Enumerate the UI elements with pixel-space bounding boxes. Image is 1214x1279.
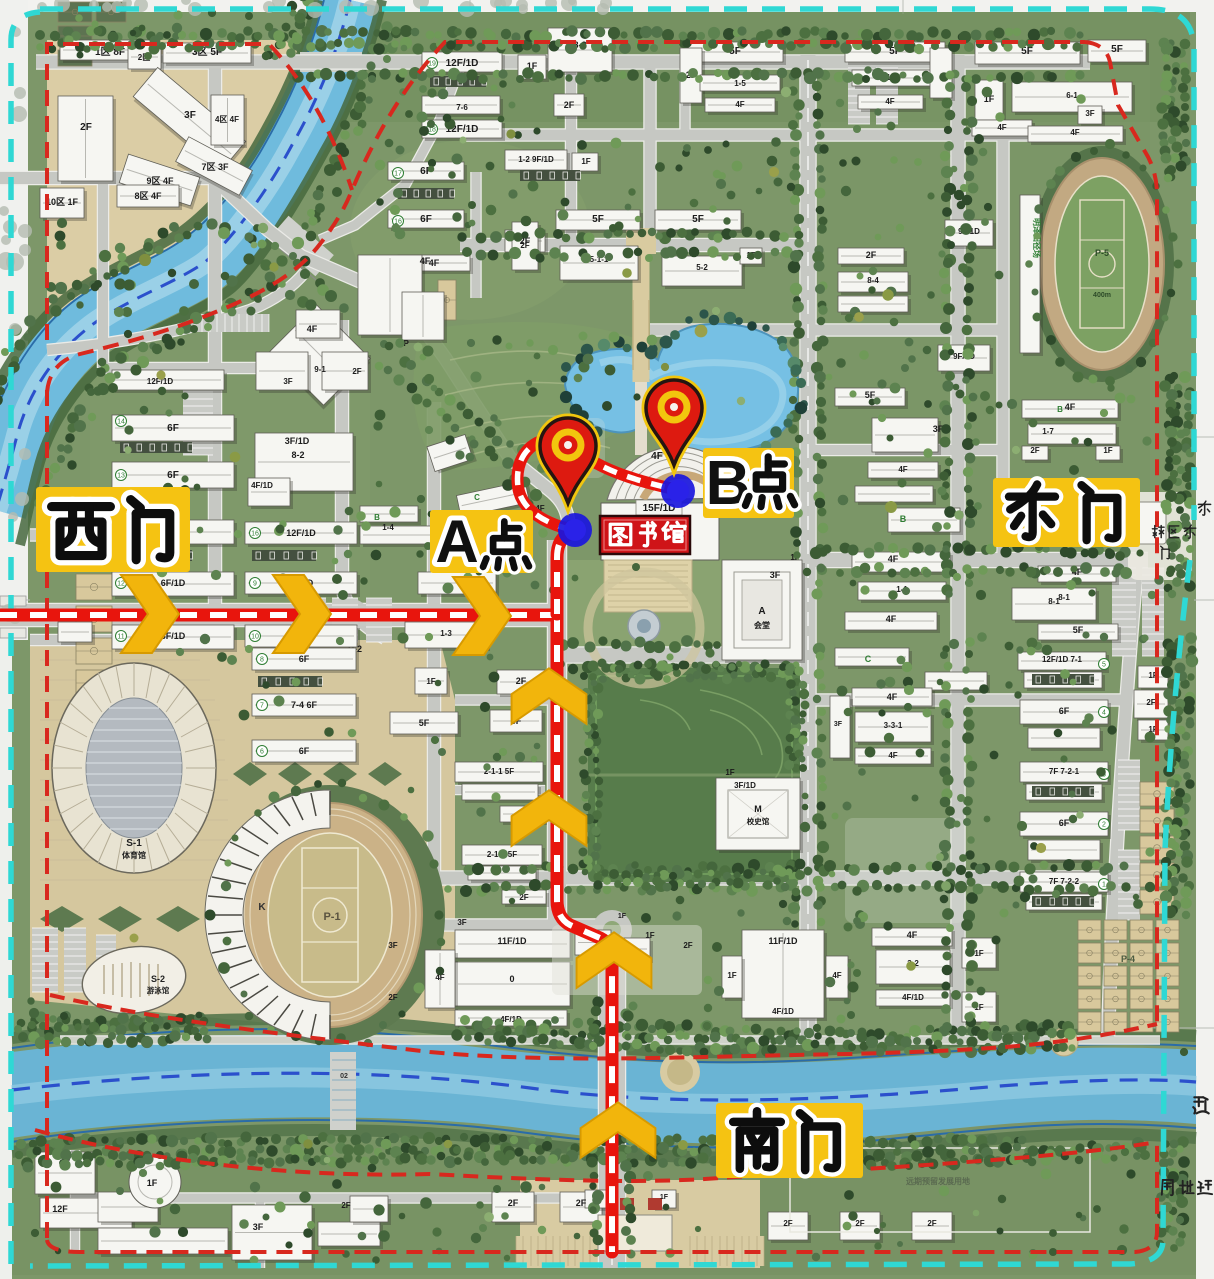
svg-text:1F: 1F: [727, 971, 736, 980]
svg-text:1F: 1F: [581, 157, 590, 166]
svg-text:2F: 2F: [352, 367, 361, 376]
svg-text:12F/1D: 12F/1D: [286, 528, 316, 538]
svg-text:2F: 2F: [341, 1201, 350, 1210]
svg-text:16: 16: [251, 531, 259, 538]
svg-text:2F: 2F: [1146, 698, 1155, 707]
svg-text:1F: 1F: [645, 931, 654, 940]
svg-text:2F: 2F: [388, 993, 397, 1002]
svg-text:5F: 5F: [1111, 44, 1123, 55]
svg-text:4F: 4F: [420, 256, 431, 266]
svg-text:3F/1D: 3F/1D: [285, 436, 310, 446]
svg-text:8-4: 8-4: [867, 276, 879, 285]
svg-text:4F: 4F: [887, 692, 898, 702]
svg-text:C: C: [474, 493, 480, 502]
svg-text:4区 4F: 4区 4F: [215, 115, 239, 124]
svg-text:5: 5: [1102, 662, 1106, 669]
svg-text:P-4: P-4: [1121, 954, 1135, 964]
svg-text:7: 7: [260, 703, 264, 710]
svg-text:12: 12: [117, 581, 125, 588]
svg-text:3F: 3F: [770, 570, 781, 580]
svg-text:2F: 2F: [927, 1219, 936, 1228]
svg-text:1F: 1F: [426, 677, 435, 686]
svg-text:S-1: S-1: [126, 838, 142, 849]
svg-text:2F: 2F: [866, 250, 877, 260]
svg-text:5F: 5F: [592, 214, 604, 225]
svg-text:4: 4: [1102, 710, 1106, 717]
svg-text:P-5: P-5: [1095, 248, 1109, 258]
svg-text:1-7: 1-7: [1042, 427, 1054, 436]
svg-text:8: 8: [260, 657, 264, 664]
svg-text:11: 11: [117, 634, 124, 641]
svg-text:体育馆: 体育馆: [122, 850, 146, 860]
svg-text:7区 3F: 7区 3F: [201, 162, 229, 172]
svg-text:A: A: [435, 508, 478, 575]
svg-text:2F: 2F: [576, 1198, 587, 1208]
svg-text:4F: 4F: [885, 97, 894, 106]
svg-text:8-2: 8-2: [291, 450, 304, 460]
svg-text:M: M: [754, 804, 762, 814]
svg-text:6F: 6F: [420, 214, 432, 225]
svg-text:2F: 2F: [783, 1219, 792, 1228]
svg-text:11F/1D: 11F/1D: [768, 936, 798, 946]
svg-text:4F/1D: 4F/1D: [902, 993, 924, 1002]
svg-text:远期预留发展用地: 远期预留发展用地: [906, 1176, 970, 1186]
svg-text:9: 9: [253, 581, 257, 588]
svg-text:10区 1F: 10区 1F: [46, 197, 79, 207]
svg-text:4F: 4F: [898, 465, 907, 474]
svg-text:7F 7-2-1: 7F 7-2-1: [1049, 767, 1080, 776]
svg-text:4F: 4F: [997, 123, 1006, 132]
svg-text:2F: 2F: [508, 1198, 519, 1208]
svg-text:17: 17: [394, 171, 402, 178]
svg-text:1F: 1F: [618, 913, 627, 920]
svg-text:3F: 3F: [283, 377, 292, 386]
svg-text:3-3-1: 3-3-1: [884, 721, 903, 730]
svg-text:游泳馆: 游泳馆: [147, 985, 170, 995]
svg-text:B: B: [374, 513, 380, 522]
svg-text:3F/1D: 3F/1D: [734, 781, 756, 790]
svg-text:1: 1: [1102, 882, 1106, 889]
svg-text:7-6: 7-6: [456, 103, 468, 112]
svg-text:4F: 4F: [888, 554, 899, 564]
svg-text:K: K: [258, 902, 266, 913]
svg-text:6F: 6F: [1059, 706, 1070, 716]
svg-text:10: 10: [251, 634, 259, 641]
svg-text:1-4: 1-4: [382, 523, 394, 532]
svg-text:3F: 3F: [388, 941, 397, 950]
svg-text:6F: 6F: [167, 423, 179, 434]
svg-text:7F 7-2-2: 7F 7-2-2: [1049, 877, 1080, 886]
svg-text:8-1: 8-1: [1058, 593, 1070, 602]
svg-text:4F: 4F: [907, 930, 918, 940]
svg-text:8区 4F: 8区 4F: [134, 191, 162, 201]
svg-text:校史馆: 校史馆: [747, 816, 770, 826]
svg-text:3F: 3F: [1085, 109, 1094, 118]
svg-text:6: 6: [260, 749, 264, 756]
svg-text:1-3: 1-3: [440, 629, 452, 638]
svg-text:会堂: 会堂: [754, 620, 770, 630]
svg-text:6F: 6F: [299, 746, 310, 756]
svg-text:S-2: S-2: [151, 974, 165, 984]
svg-text:1F: 1F: [1103, 446, 1112, 455]
svg-text:0: 0: [509, 974, 514, 984]
svg-text:3F: 3F: [457, 918, 466, 927]
svg-text:4F: 4F: [888, 751, 897, 760]
svg-text:14: 14: [117, 419, 125, 426]
svg-text:3F: 3F: [184, 110, 196, 121]
svg-text:2F: 2F: [1030, 446, 1039, 455]
svg-text:B: B: [1057, 405, 1063, 414]
svg-text:4F: 4F: [735, 100, 744, 109]
svg-text:7-4 6F: 7-4 6F: [291, 700, 318, 710]
svg-text:B: B: [900, 514, 907, 524]
svg-text:13: 13: [117, 473, 125, 480]
svg-text:3F: 3F: [834, 721, 843, 728]
svg-text:4F: 4F: [886, 614, 897, 624]
svg-text:P-1: P-1: [323, 911, 340, 923]
svg-text:6F: 6F: [299, 654, 310, 664]
svg-text:4F: 4F: [307, 324, 318, 334]
svg-text:1F: 1F: [974, 949, 983, 958]
svg-text:11F/1D: 11F/1D: [497, 936, 527, 946]
svg-text:12F/1D: 12F/1D: [446, 58, 479, 69]
svg-text:A: A: [758, 606, 765, 617]
svg-text:5-2: 5-2: [696, 263, 708, 272]
svg-text:C: C: [865, 654, 872, 664]
svg-text:12F/1D 7-1: 12F/1D 7-1: [1042, 655, 1083, 664]
svg-text:2F: 2F: [855, 1219, 864, 1228]
svg-text:4F: 4F: [429, 258, 440, 268]
svg-text:2F: 2F: [520, 241, 529, 250]
svg-text:4F: 4F: [1070, 128, 1079, 137]
svg-text:4F/1D: 4F/1D: [251, 481, 273, 490]
svg-text:1F: 1F: [660, 1194, 669, 1201]
svg-text:2: 2: [1102, 822, 1106, 829]
svg-text:12F: 12F: [52, 1204, 68, 1214]
svg-text:5F: 5F: [1073, 625, 1084, 635]
svg-text:3F: 3F: [253, 1222, 264, 1232]
svg-text:6F: 6F: [167, 470, 179, 481]
svg-text:4F: 4F: [651, 451, 663, 462]
svg-text:5F: 5F: [692, 214, 704, 225]
svg-text:2F: 2F: [564, 100, 575, 110]
svg-text:1F: 1F: [147, 1178, 158, 1188]
svg-text:2F: 2F: [80, 122, 92, 133]
svg-text:5F: 5F: [865, 390, 876, 400]
svg-text:4F: 4F: [1065, 402, 1076, 412]
svg-text:4F/1D: 4F/1D: [772, 1007, 794, 1016]
svg-text:02: 02: [340, 1073, 348, 1080]
svg-text:6F: 6F: [1059, 818, 1070, 828]
svg-text:400m: 400m: [1093, 292, 1111, 299]
svg-text:5F: 5F: [419, 718, 430, 728]
svg-text:6F/1D: 6F/1D: [161, 578, 186, 588]
svg-text:1-2 9F/1D: 1-2 9F/1D: [518, 155, 554, 164]
svg-text:1F: 1F: [725, 768, 734, 777]
svg-text:9区 4F: 9区 4F: [146, 176, 174, 186]
svg-text:1-5: 1-5: [734, 79, 746, 88]
svg-text:9-1: 9-1: [314, 365, 326, 374]
svg-text:2F: 2F: [683, 941, 692, 950]
